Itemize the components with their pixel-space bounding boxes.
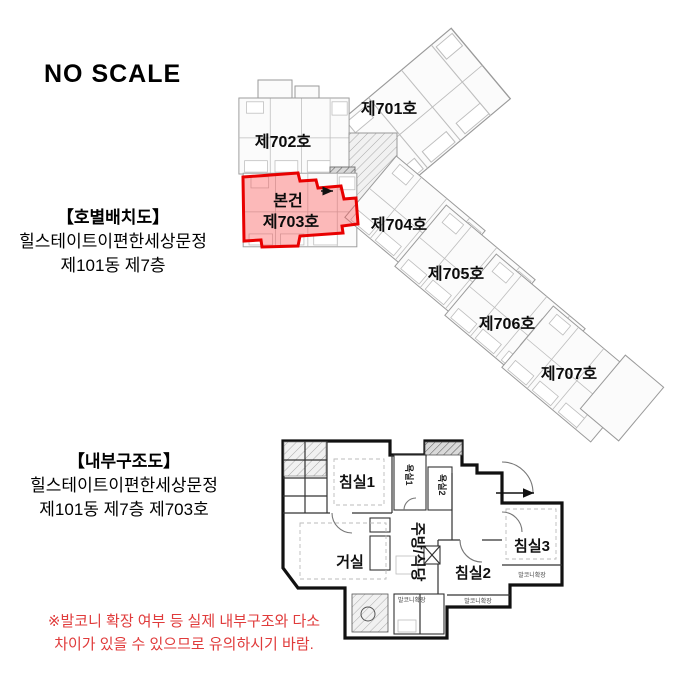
- room-label-bedroom1: 침실1: [339, 474, 375, 491]
- floor-plan-drawing: 침실1 거실 주방/식당 침실2 침실3 욕실1 욕실2 발코니확장 발코니확장…: [283, 441, 562, 638]
- appraisal-exhibit-page: { "title_note": { "no_scale": "NO SCALE"…: [0, 0, 682, 700]
- ac-unit-bay: [425, 442, 462, 455]
- unit-label-704: 제704호: [371, 216, 427, 234]
- unit-label-703: 제703호: [263, 213, 319, 231]
- balcony-ext-label-1: 발코니확장: [398, 596, 426, 604]
- subject-marker-label: 본건: [273, 192, 302, 210]
- entrance-door-arc: [502, 462, 533, 493]
- drawings-canvas: 제701호 제702호 본건 제703호 제704호 제705호 제706호 제…: [0, 0, 682, 700]
- building-layout-drawing: 제701호 제702호 본건 제703호 제704호 제705호 제706호 제…: [239, 28, 664, 442]
- unit-label-707: 제707호: [541, 365, 597, 383]
- unit-label-706: 제706호: [479, 315, 535, 333]
- kitchen-counter: [370, 536, 390, 570]
- unit-label-705: 제705호: [428, 265, 484, 283]
- room-label-living: 거실: [336, 554, 364, 571]
- room-label-bedroom3: 침실3: [514, 538, 550, 555]
- unit-label-701: 제701호: [361, 100, 417, 118]
- unit-702-annex: [258, 80, 292, 98]
- room-label-kitchen: 주방/식당: [409, 522, 427, 582]
- room-label-bedroom2: 침실2: [455, 565, 491, 582]
- unit-702-annex2: [295, 86, 319, 98]
- balcony-ext-label-3: 발코니확장: [518, 571, 546, 579]
- unit-label-702: 제702호: [255, 133, 311, 151]
- room-label-bath2: 욕실2: [437, 474, 448, 496]
- room-label-bath1: 욕실1: [404, 464, 415, 486]
- balcony-ext-label-2: 발코니확장: [464, 597, 492, 605]
- utility-room: [352, 594, 388, 632]
